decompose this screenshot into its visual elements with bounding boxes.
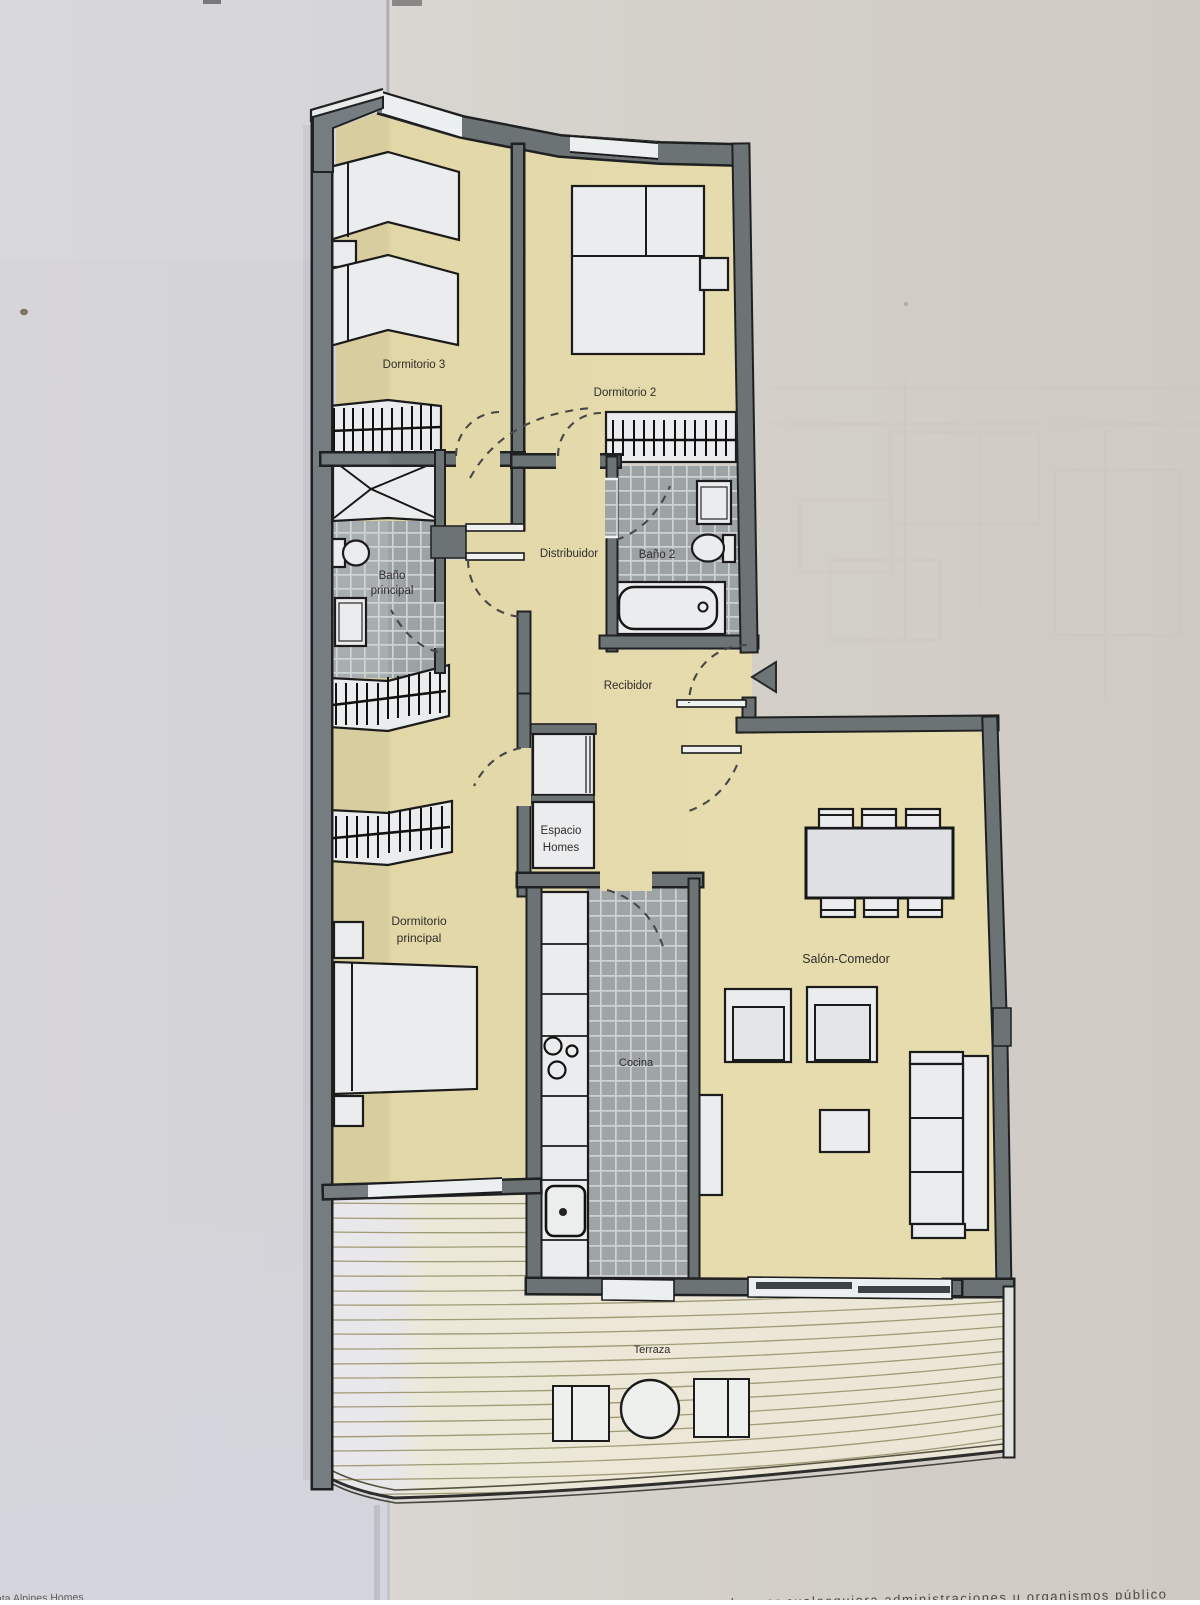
svg-text:Cocina: Cocina (619, 1057, 654, 1069)
svg-text:Homes: Homes (543, 842, 580, 854)
svg-text:Terraza: Terraza (634, 1344, 672, 1356)
svg-text:principal: principal (371, 585, 414, 597)
svg-text:Baño 2: Baño 2 (639, 549, 675, 561)
svg-text:Recibidor: Recibidor (604, 680, 653, 692)
svg-text:Distribuidor: Distribuidor (540, 548, 598, 560)
svg-text:Dormitorio 3: Dormitorio 3 (383, 359, 446, 371)
svg-text:Dormitorio 2: Dormitorio 2 (594, 387, 657, 399)
svg-text:principal: principal (397, 931, 442, 945)
svg-text:Salón-Comedor: Salón-Comedor (802, 952, 890, 966)
svg-text:Baño: Baño (379, 570, 406, 582)
svg-text:ata Alpines Homes: ata Alpines Homes (0, 1592, 84, 1600)
svg-text:Dormitorio: Dormitorio (391, 914, 447, 928)
svg-text:Espacio: Espacio (541, 825, 582, 837)
